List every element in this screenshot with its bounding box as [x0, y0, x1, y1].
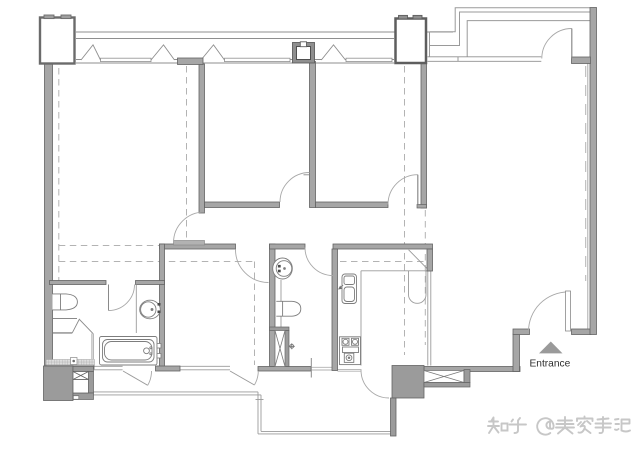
svg-text:Entrance: Entrance — [530, 358, 571, 369]
